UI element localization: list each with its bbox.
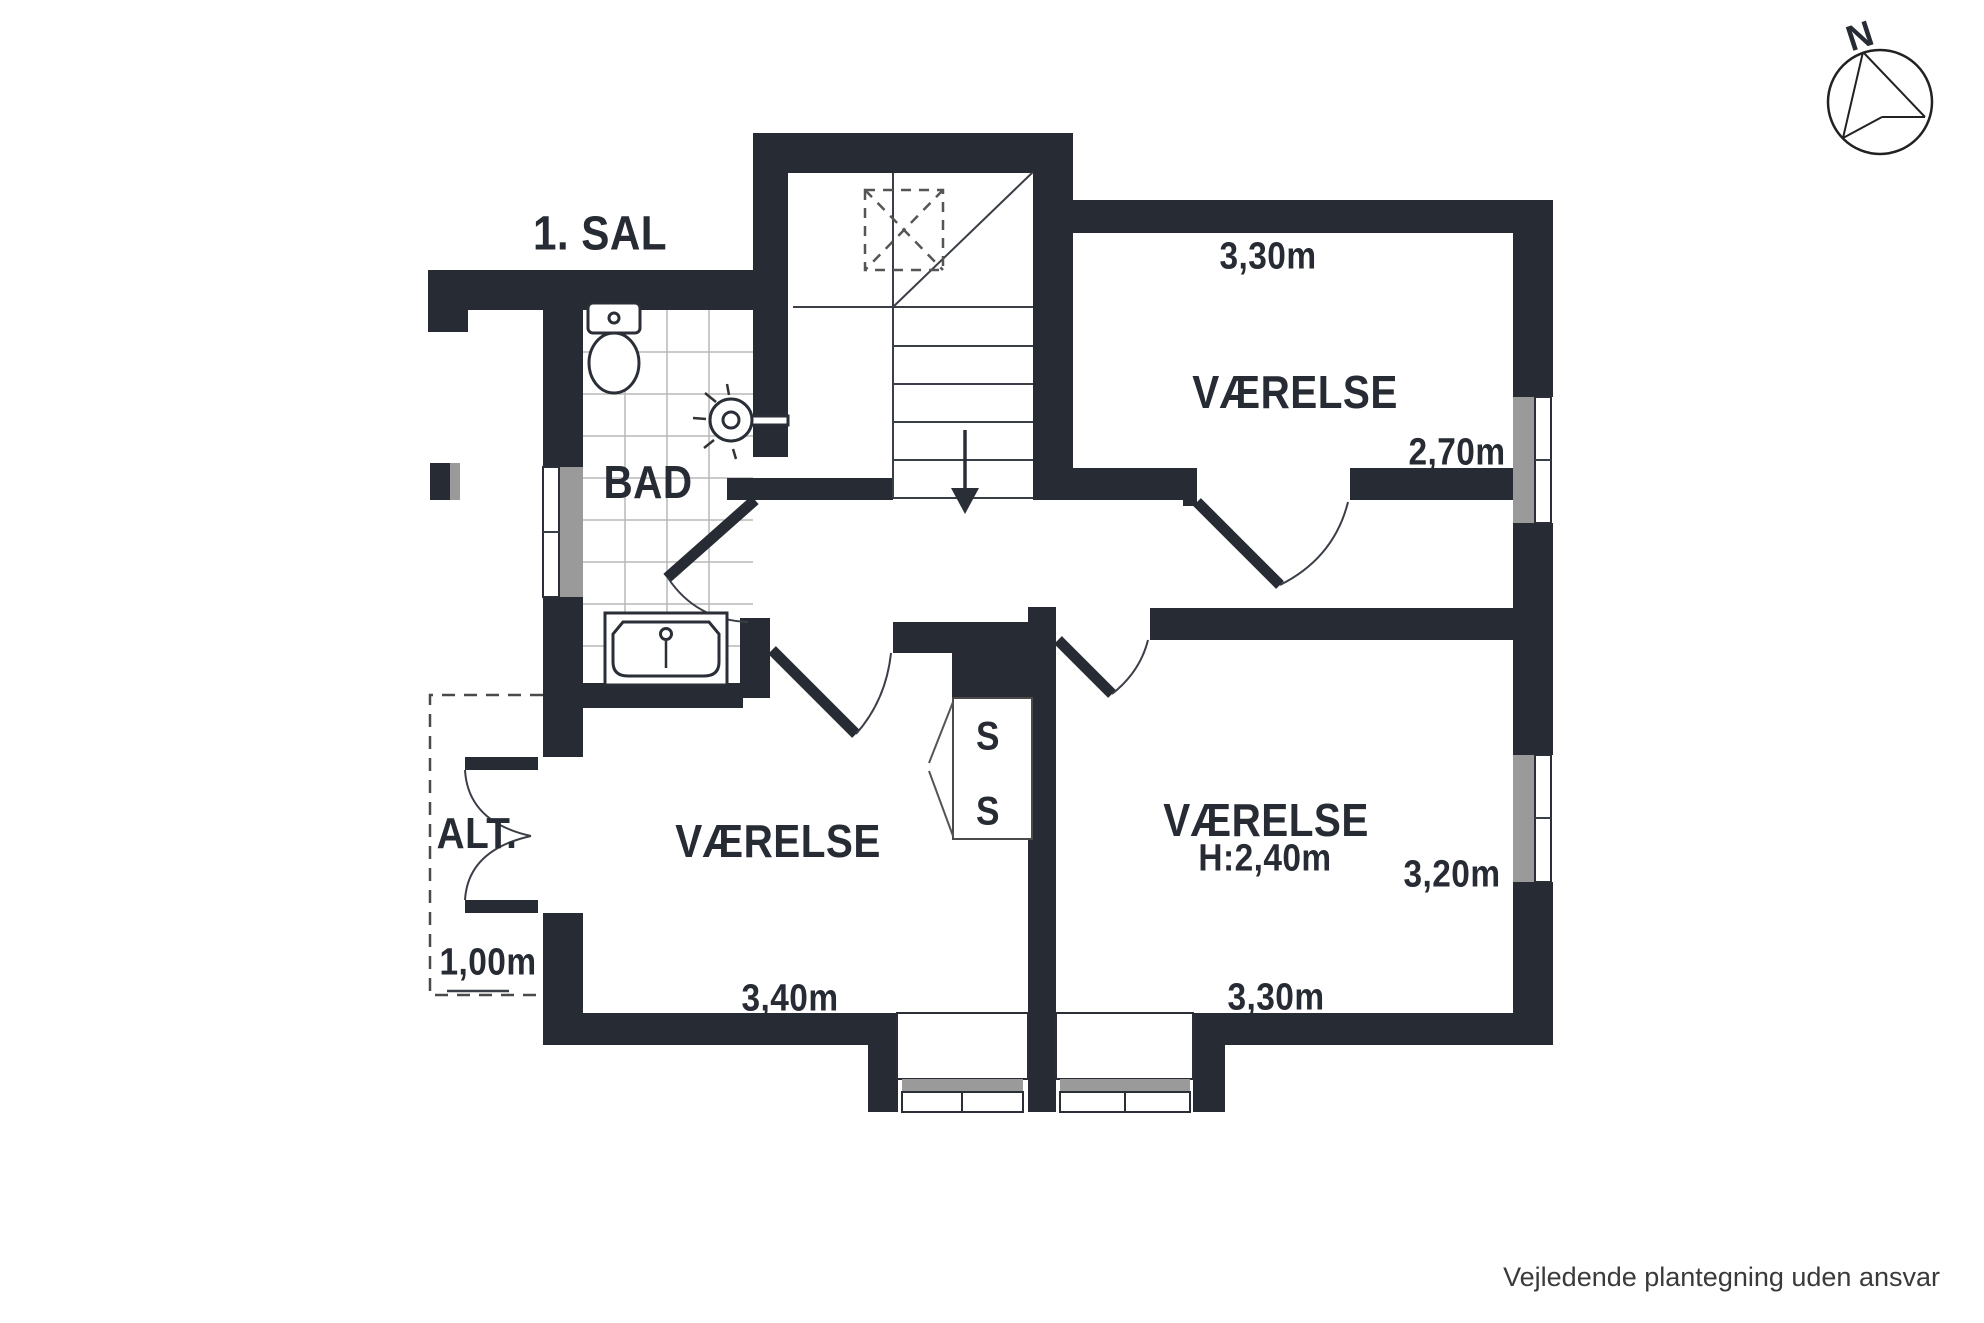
closet-shelf-top-label: S (976, 715, 1000, 760)
room-top-right-window (1513, 397, 1551, 523)
sink (605, 613, 727, 685)
staircase (793, 172, 1033, 514)
room-bottom-right-height: H:2,40m (1198, 838, 1331, 881)
compass-rose (1828, 50, 1932, 154)
room-top-right-depth: 2,70m (1408, 432, 1505, 475)
stair-skylight (865, 190, 943, 270)
room-bottom-right-door (1058, 640, 1148, 694)
room-top-right-width: 3,30m (1219, 236, 1316, 279)
room-bottom-left-width: 3,40m (741, 978, 838, 1021)
room-bottom-right-depth: 3,20m (1403, 854, 1500, 897)
floorplan-drawing (0, 0, 1984, 1323)
bathroom-window (543, 467, 583, 597)
balcony-width: 1,00m (439, 942, 536, 985)
disclaimer-text: Vejledende plantegning uden ansvar (1503, 1262, 1940, 1293)
bay-window-right (1056, 1013, 1193, 1112)
room-bottom-left-door (772, 650, 891, 734)
walls (428, 133, 1553, 1112)
bathroom-label: BAD (603, 455, 692, 509)
page-title: 1. SAL (533, 207, 667, 262)
room-bottom-right-window (1513, 755, 1551, 882)
closet-shelf-bottom-label: S (976, 790, 1000, 835)
stair-down-arrow (951, 430, 979, 514)
room-bottom-right-width: 3,30m (1227, 977, 1324, 1020)
floorplan-canvas: 1. SAL BAD VÆRELSE 3,30m 2,70m VÆRELSE H… (0, 0, 1984, 1323)
toilet (588, 303, 640, 393)
room-bottom-left-label: VÆRELSE (675, 814, 881, 868)
room-top-right-label: VÆRELSE (1192, 365, 1398, 419)
balcony-label: ALT. (437, 809, 518, 859)
bay-window-left (897, 1013, 1028, 1112)
room-top-right-door (1197, 502, 1348, 585)
